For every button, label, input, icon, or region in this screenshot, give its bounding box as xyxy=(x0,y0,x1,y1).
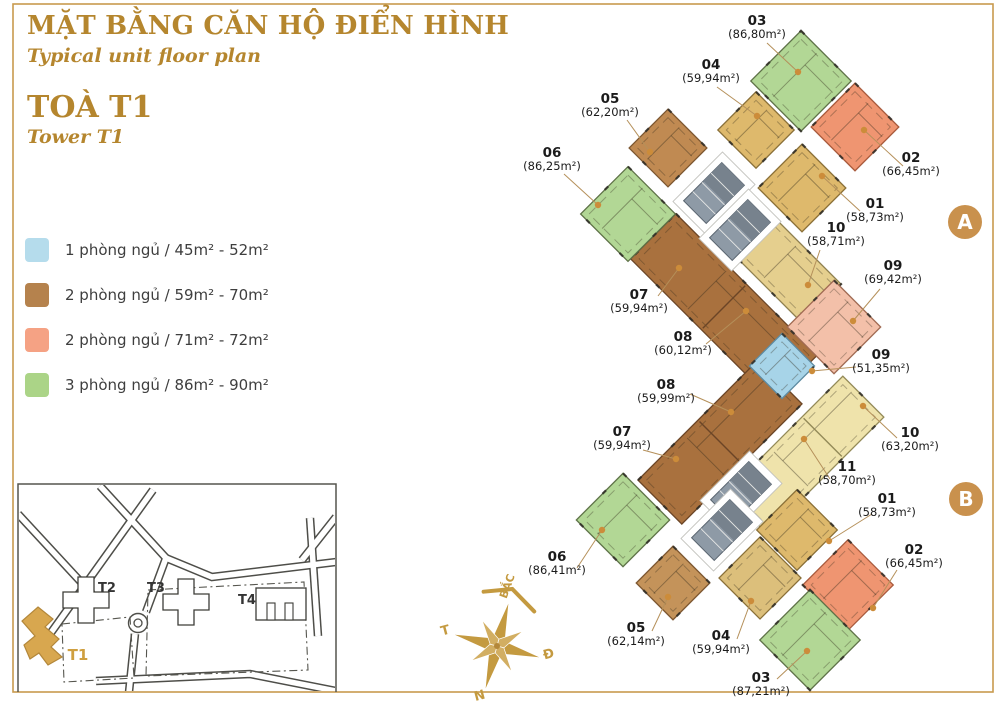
floor-plan: 03(86,80m²)04(59,94m²)05(62,20m²)06(86,2… xyxy=(523,13,983,698)
unit-marker-a01 xyxy=(819,173,825,179)
section-badge-letter-a: A xyxy=(957,210,973,234)
leader-line-a06 xyxy=(564,174,598,205)
unit-label-a06: 06(86,25m²) xyxy=(523,145,581,173)
unit-area-b11: (58,70m²) xyxy=(818,473,876,487)
unit-marker-b10 xyxy=(860,403,866,409)
unit-a05 xyxy=(629,109,707,187)
unit-area-b03: (87,21m²) xyxy=(732,684,790,698)
unit-area-b08: (59,99m²) xyxy=(637,391,695,405)
unit-area-a04: (59,94m²) xyxy=(682,71,740,85)
unit-marker-a05 xyxy=(647,149,653,155)
legend-label: 2 phòng ngủ / 71m² - 72m² xyxy=(65,331,269,349)
unit-area-b10: (63,20m²) xyxy=(881,439,939,453)
legend-item: 3 phòng ngủ / 86m² - 90m² xyxy=(25,373,269,397)
unit-marker-b06 xyxy=(599,527,605,533)
unit-label-m09: 09(51,35m²) xyxy=(852,347,910,375)
unit-marker-b03 xyxy=(804,648,810,654)
legend-item: 2 phòng ngủ / 59m² - 70m² xyxy=(25,283,269,307)
unit-marker-b05 xyxy=(665,594,671,600)
unit-label-a05: 05(62,20m²) xyxy=(581,91,639,119)
unit-b05 xyxy=(636,546,710,620)
compass-label-west: T xyxy=(439,623,452,640)
unit-marker-a07 xyxy=(676,265,682,271)
unit-area-a06: (86,25m²) xyxy=(523,159,581,173)
unit-marker-a06 xyxy=(595,202,601,208)
compass-rose: BẮCTĐN xyxy=(422,559,575,706)
unit-area-a09: (69,42m²) xyxy=(864,272,922,286)
legend-label: 3 phòng ngủ / 86m² - 90m² xyxy=(65,376,269,394)
building-t1-footprint xyxy=(22,607,62,665)
unit-marker-b02 xyxy=(870,605,876,611)
unit-label-b08: 08(59,99m²) xyxy=(637,377,695,405)
tower-title: TOÀ T1 xyxy=(27,91,509,124)
unit-marker-m09 xyxy=(809,368,815,374)
section-badge-b: B xyxy=(949,482,983,516)
unit-marker-b01 xyxy=(826,538,832,544)
page-title: MẶT BẰNG CĂN HỘ ĐIỂN HÌNH xyxy=(27,12,509,42)
unit-area-b06: (86,41m²) xyxy=(528,563,586,577)
unit-area-a07: (59,94m²) xyxy=(610,301,668,315)
header: MẶT BẰNG CĂN HỘ ĐIỂN HÌNH Typical unit f… xyxy=(27,12,509,148)
unit-label-b01: 01(58,73m²) xyxy=(858,491,916,519)
site-map-label-t1: T1 xyxy=(68,646,89,664)
leader-line-b04 xyxy=(737,601,751,639)
unit-label-b06: 06(86,41m²) xyxy=(528,549,586,577)
unit-label-b10: 10(63,20m²) xyxy=(881,425,939,453)
page-subtitle: Typical unit floor plan xyxy=(27,45,509,67)
unit-label-b07: 07(59,94m²) xyxy=(593,424,651,452)
unit-area-a03: (86,80m²) xyxy=(728,27,786,41)
building-t3-footprint xyxy=(163,579,209,625)
unit-label-a03: 03(86,80m²) xyxy=(728,13,786,41)
unit-marker-a09 xyxy=(850,318,856,324)
site-map: T1T2T3T4 xyxy=(18,484,336,692)
legend-swatch xyxy=(25,283,49,307)
legend-item: 1 phòng ngủ / 45m² - 52m² xyxy=(25,238,269,262)
legend-swatch xyxy=(25,373,49,397)
legend-label: 2 phòng ngủ / 59m² - 70m² xyxy=(65,286,269,304)
unit-area-b07: (59,94m²) xyxy=(593,438,651,452)
unit-area-b02: (66,45m²) xyxy=(885,556,943,570)
section-badge-a: A xyxy=(948,205,982,239)
unit-label-b05: 05(62,14m²) xyxy=(607,620,665,648)
unit-label-a04: 04(59,94m²) xyxy=(682,57,740,85)
legend-swatch xyxy=(25,238,49,262)
unit-area-m09: (51,35m²) xyxy=(852,361,910,375)
site-map-label-t3: T3 xyxy=(147,581,165,596)
unit-label-b03: 03(87,21m²) xyxy=(732,670,790,698)
unit-label-a01: 01(58,73m²) xyxy=(846,196,904,224)
unit-marker-a02 xyxy=(861,127,867,133)
site-map-label-t4: T4 xyxy=(238,593,256,608)
unit-marker-a03 xyxy=(795,69,801,75)
unit-marker-a04 xyxy=(754,113,760,119)
unit-marker-a08 xyxy=(743,308,749,314)
compass-label-east: Đ xyxy=(542,646,557,663)
unit-marker-b08 xyxy=(728,409,734,415)
unit-area-a05: (62,20m²) xyxy=(581,105,639,119)
unit-label-a07: 07(59,94m²) xyxy=(610,287,668,315)
unit-label-a10: 10(58,71m²) xyxy=(807,220,865,248)
unit-marker-b04 xyxy=(748,598,754,604)
section-badge-letter-b: B xyxy=(958,487,973,511)
unit-area-a01: (58,73m²) xyxy=(846,210,904,224)
unit-area-a10: (58,71m²) xyxy=(807,234,865,248)
legend: 1 phòng ngủ / 45m² - 52m²2 phòng ngủ / 5… xyxy=(25,238,269,418)
compass-label-north: BẮC xyxy=(495,572,518,601)
unit-area-b05: (62,14m²) xyxy=(607,634,665,648)
unit-label-a08: 08(60,12m²) xyxy=(654,329,712,357)
unit-label-a09: 09(69,42m²) xyxy=(864,258,922,286)
unit-label-b02: 02(66,45m²) xyxy=(885,542,943,570)
unit-area-b01: (58,73m²) xyxy=(858,505,916,519)
legend-swatch xyxy=(25,328,49,352)
legend-label: 1 phòng ngủ / 45m² - 52m² xyxy=(65,241,269,259)
unit-marker-b11 xyxy=(801,436,807,442)
compass-label-south: N xyxy=(472,688,486,705)
unit-area-a02: (66,45m²) xyxy=(882,164,940,178)
site-map-label-t2: T2 xyxy=(98,581,116,596)
legend-item: 2 phòng ngủ / 71m² - 72m² xyxy=(25,328,269,352)
unit-marker-b07 xyxy=(673,456,679,462)
tower-subtitle: Tower T1 xyxy=(27,126,509,148)
building-t4-footprint xyxy=(256,588,306,620)
unit-label-b04: 04(59,94m²) xyxy=(692,628,750,656)
unit-marker-a10 xyxy=(805,282,811,288)
unit-area-a08: (60,12m²) xyxy=(654,343,712,357)
unit-area-b04: (59,94m²) xyxy=(692,642,750,656)
page: T1T2T3T4BẮCTĐN03(86,80m²)04(59,94m²)05(6… xyxy=(0,0,1000,706)
